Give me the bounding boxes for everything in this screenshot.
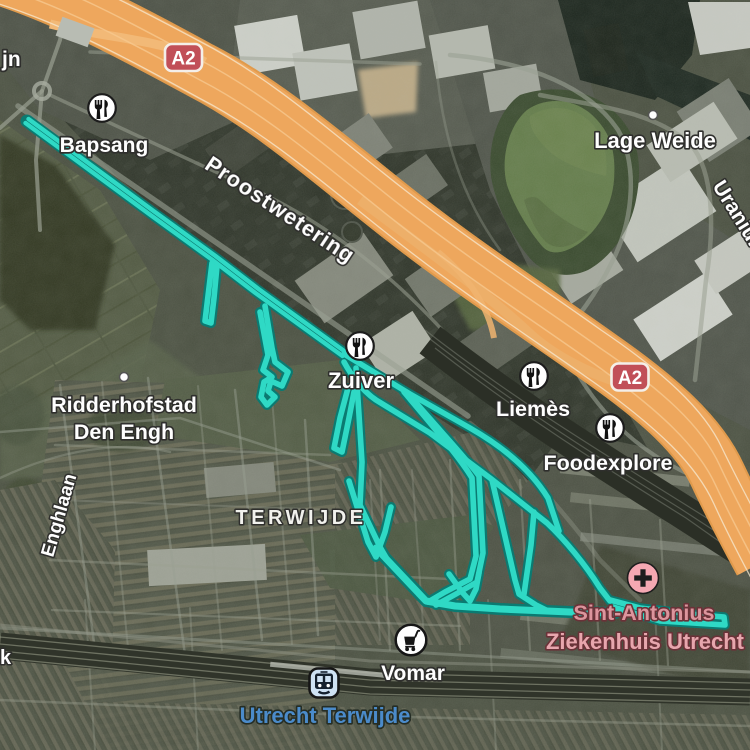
svg-text:Utrecht Terwijde: Utrecht Terwijde: [240, 703, 411, 728]
svg-text:Bapsang: Bapsang: [60, 134, 149, 157]
svg-text:Ziekenhuis Utrecht: Ziekenhuis Utrecht: [546, 629, 745, 654]
svg-text:TERWIJDE: TERWIJDE: [236, 507, 367, 529]
svg-text:A2: A2: [171, 49, 195, 70]
svg-text:jn: jn: [1, 48, 21, 71]
svg-text:Sint-Antonius: Sint-Antonius: [574, 601, 715, 625]
svg-text:k: k: [0, 647, 12, 669]
svg-text:Vomar: Vomar: [381, 662, 445, 685]
svg-text:Liemès: Liemès: [496, 397, 570, 421]
svg-text:Ridderhofstad: Ridderhofstad: [51, 393, 197, 417]
svg-text:Zuiver: Zuiver: [328, 368, 394, 393]
svg-text:A2: A2: [618, 368, 642, 389]
svg-text:Lage Weide: Lage Weide: [594, 128, 716, 153]
svg-text:Foodexplore: Foodexplore: [543, 451, 672, 475]
svg-text:Den Engh: Den Engh: [74, 420, 174, 444]
